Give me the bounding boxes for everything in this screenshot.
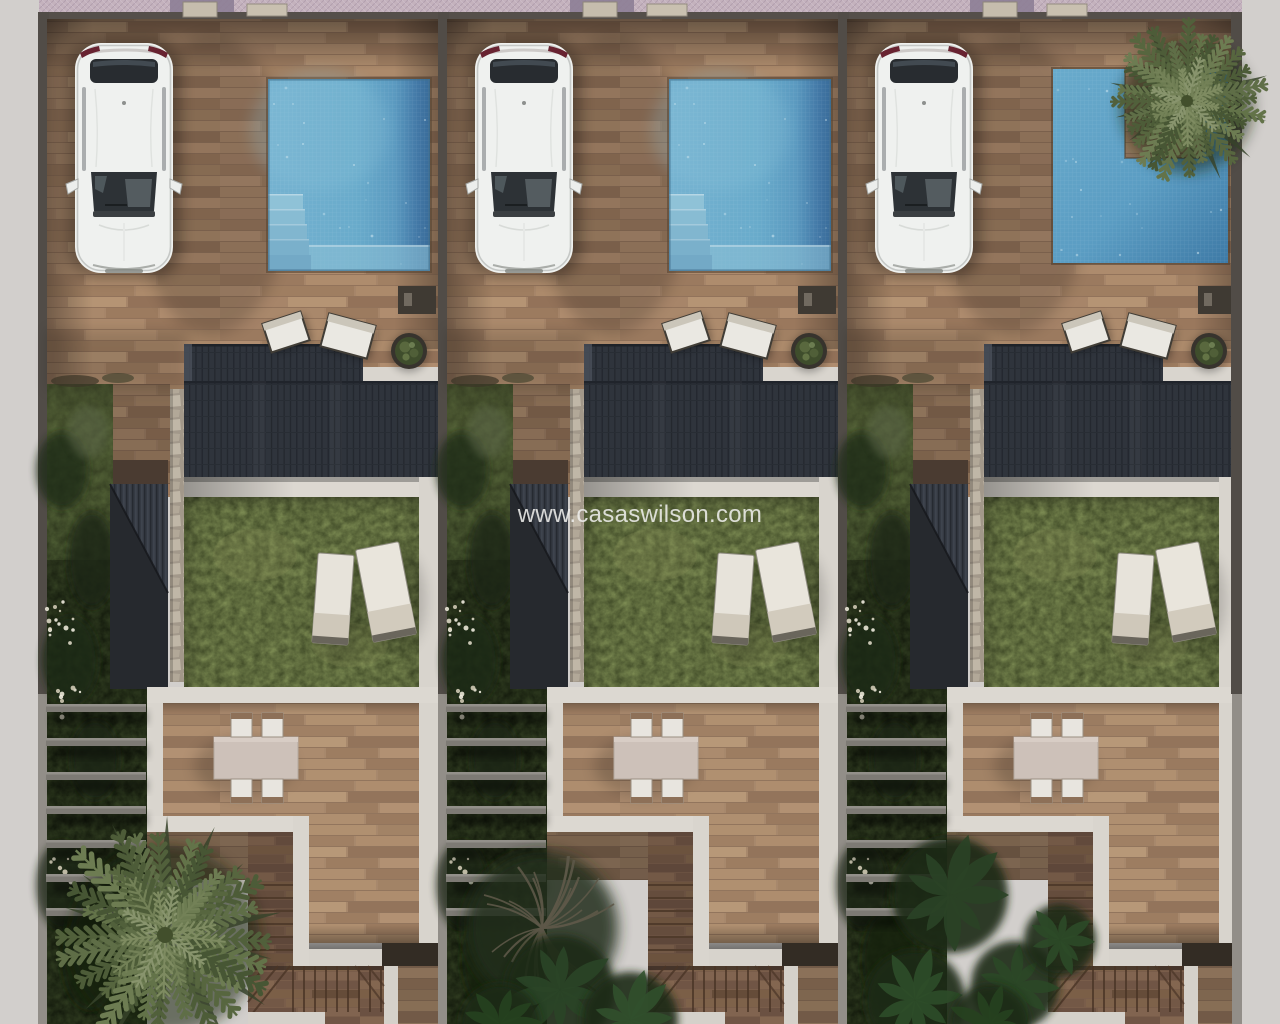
svg-text:www.casaswilson.com: www.casaswilson.com [517, 501, 762, 528]
